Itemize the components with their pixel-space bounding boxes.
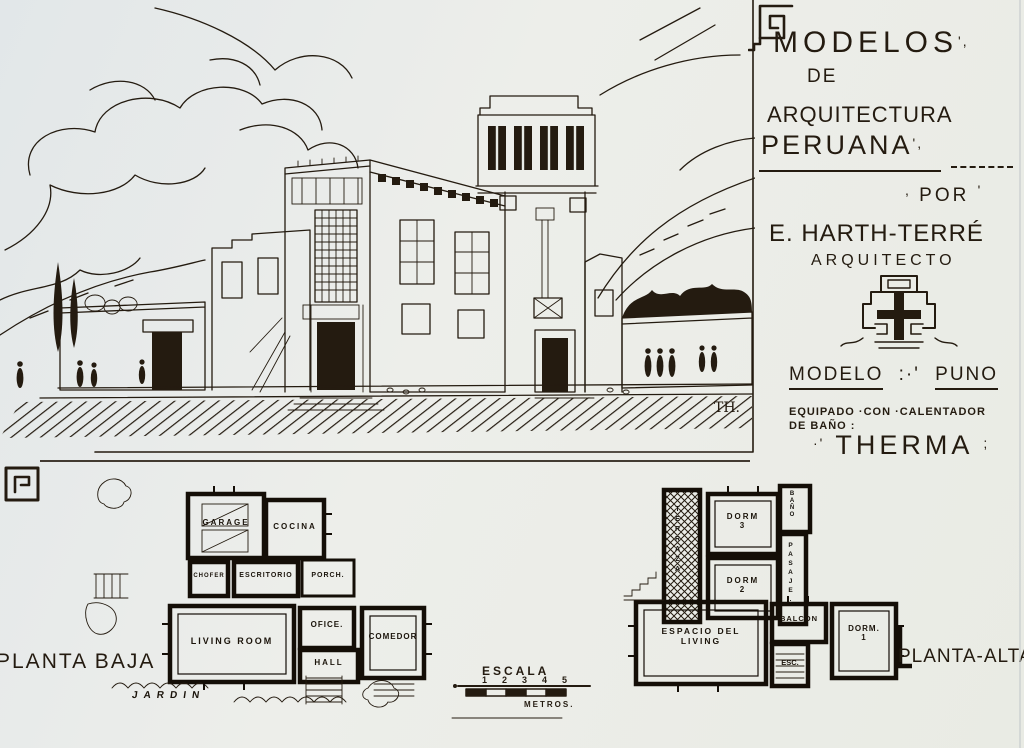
- scale-label: ESCALA: [482, 664, 549, 678]
- planta-baja-plan: GARAGE COCINA CHOFER ESCRITORIO PORCH. L…: [84, 474, 446, 736]
- brand-therma: THERMA: [835, 430, 972, 460]
- dorm1-line2: 1: [838, 633, 890, 642]
- belvedere-openings: [488, 126, 584, 170]
- por-text: POR: [919, 185, 969, 206]
- model-row: MODELO :·' PUNO: [789, 364, 998, 386]
- title-block: MODELOS', DE ARQUITECTURA PERUANA', , PO…: [755, 0, 1024, 470]
- title-modelos: MODELOS: [773, 26, 958, 59]
- scale-tick-5: 5: [562, 675, 567, 685]
- por-suffix: ': [978, 182, 983, 198]
- room-label-balcon: BALCON: [776, 614, 822, 623]
- scale-bar: ESCALA 1 2 3 4 5 METROS.: [450, 656, 600, 726]
- exterior-stairs: [94, 574, 128, 598]
- room-label-garage: GARAGE: [196, 518, 256, 527]
- stepped-square-motif-icon: [2, 464, 44, 506]
- model-separator: :·': [891, 364, 928, 385]
- room-label-dorm3: DORM 3: [712, 512, 774, 530]
- scale-tick-3: 3: [522, 675, 527, 685]
- street-shadow-hatch: [0, 396, 752, 438]
- tree-bottom-right: [363, 681, 399, 708]
- dorm3-line1: DORM: [712, 512, 774, 521]
- room-label-living: LIVING ROOM: [176, 636, 288, 646]
- dorm2-line2: 2: [712, 585, 774, 594]
- title-underline: [759, 170, 941, 172]
- artist-monogram: TH.: [714, 400, 740, 416]
- exterior-zigzag-stair: [624, 572, 664, 600]
- brand-suffix: ;: [983, 435, 989, 451]
- title-peruana: PERUANA: [761, 130, 913, 160]
- room-label-porch: PORCH.: [306, 572, 350, 579]
- architect-name: E. HARTH-TERRÉ: [769, 220, 984, 248]
- room-label-espacio: ESPACIO DEL LIVING: [648, 626, 754, 646]
- plate-title-line2: DE: [807, 66, 837, 88]
- planta-alta-title: PLANTA-ALTA.: [898, 646, 1024, 668]
- brand-row: ·' THERMA ;: [813, 430, 989, 461]
- scale-tick-4: 4: [542, 675, 547, 685]
- room-label-jardin: JARDIN: [131, 690, 206, 701]
- por-prefix: ,: [905, 182, 911, 198]
- planta-alta-plan: TERRAZA DORM 3 DORM 2 BAÑO PASAJE. ESPAC…: [618, 476, 918, 724]
- plate-title-line4: PERUANA',: [761, 130, 923, 161]
- room-label-ofice: OFICE.: [304, 620, 350, 629]
- room-label-terraza: TERRAZA: [674, 506, 681, 610]
- garden-blob-left: [86, 603, 117, 635]
- scale-unit: METROS.: [524, 700, 574, 709]
- espacio-line1: ESPACIO DEL: [648, 626, 754, 636]
- plate-title-line1: MODELOS',: [773, 26, 969, 60]
- scale-tick-1: 1: [482, 675, 487, 685]
- room-label-cocina: COCINA: [270, 522, 320, 531]
- title-marks: ',: [958, 33, 969, 49]
- porch-steps: [374, 684, 414, 696]
- dorm3-line2: 3: [712, 521, 774, 530]
- room-label-pasaje: PASAJE.: [787, 542, 794, 618]
- model-value: PUNO: [935, 364, 998, 390]
- architect-title: ARQUITECTO: [811, 252, 956, 270]
- byline-por: , POR ': [905, 182, 982, 207]
- main-facade-sketch: [370, 160, 505, 392]
- dorm2-line1: DORM: [712, 576, 774, 585]
- room-label-bano: BAÑO: [789, 491, 795, 529]
- andean-step-emblem-icon: [839, 272, 959, 354]
- room-label-esc: ESC.: [774, 658, 806, 667]
- street-figures: [17, 345, 718, 388]
- title-marks2: ',: [913, 135, 924, 151]
- tower-sketch: [476, 96, 598, 398]
- room-label-dorm2: DORM 2: [712, 576, 774, 594]
- left-wing-sketch: [212, 230, 310, 392]
- garage-parking-marks: [202, 504, 248, 552]
- room-label-escritorio: ESCRITORIO: [236, 572, 296, 579]
- scale-tick-2: 2: [502, 675, 507, 685]
- brand-prefix: ·': [813, 435, 824, 451]
- clouds-sketch: [0, 8, 755, 300]
- perspective-sketch: [0, 0, 755, 455]
- room-label-chofer: CHOFER: [191, 573, 227, 579]
- section-divider: [40, 460, 750, 462]
- frieze-band: [378, 174, 498, 207]
- tree-top-left: [98, 479, 131, 508]
- room-label-hall: HALL: [306, 658, 352, 667]
- right-wall-sketch: [585, 254, 752, 392]
- paper-edge: [1019, 0, 1021, 748]
- room-label-comedor: COMEDOR: [366, 632, 420, 641]
- title-underline-dash: [951, 166, 1013, 168]
- architectural-plate: TH. MODELOS', DE ARQUITECTURA PERUANA', …: [0, 0, 1024, 748]
- planta-baja-title: PLANTA BAJA: [0, 650, 155, 674]
- plate-title-line3: ARQUITECTURA: [767, 102, 953, 128]
- espacio-line2: LIVING: [648, 636, 754, 646]
- room-label-dorm1: DORM. 1: [838, 624, 890, 642]
- model-label: MODELO: [789, 364, 883, 390]
- entrance-pylon-sketch: [285, 156, 384, 410]
- dorm1-line1: DORM.: [838, 624, 890, 633]
- equipment-line1: EQUIPADO ·CON ·CALENTADOR: [789, 406, 986, 418]
